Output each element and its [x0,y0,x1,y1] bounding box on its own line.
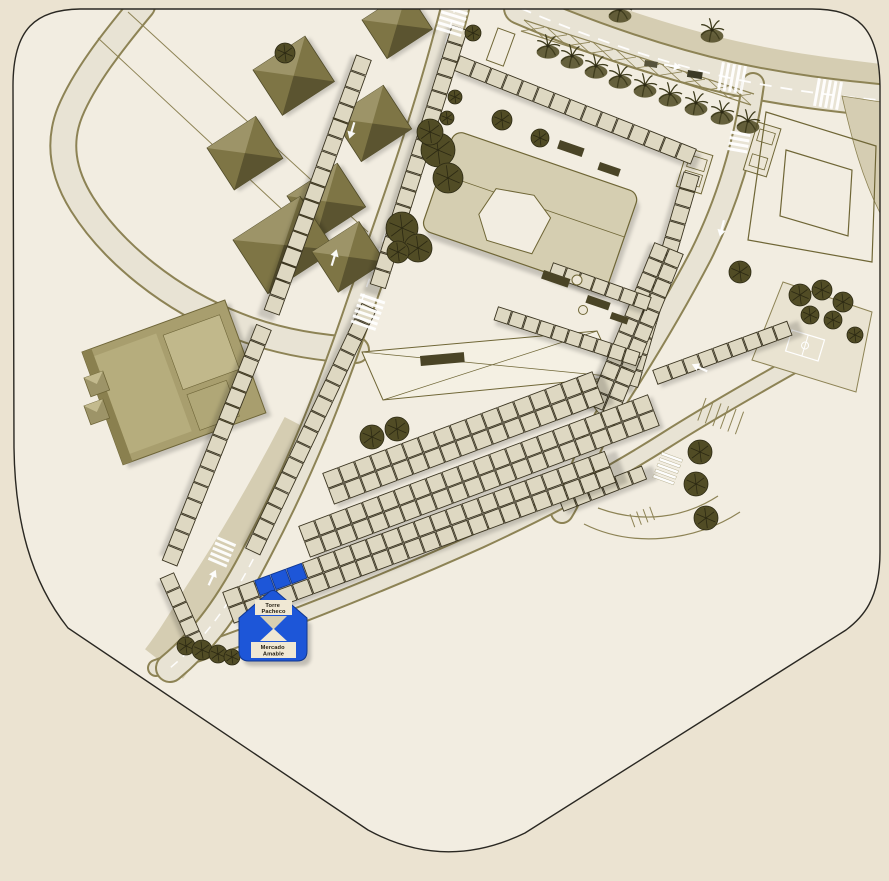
tree [440,111,454,125]
fountain [579,306,588,315]
tree [492,110,512,130]
tree [275,43,295,63]
tree [465,25,481,41]
tree [789,284,811,306]
tree [833,292,853,312]
tree [433,163,463,193]
tree [729,261,751,283]
tree [360,425,384,449]
tree [448,90,462,104]
tree [417,119,443,145]
fountain [572,275,582,285]
tree [531,129,549,147]
tree [812,280,832,300]
tree [801,306,819,324]
marker-subtitle: Mercado Amable [261,645,287,657]
tree [847,327,863,343]
map-canvas[interactable]: Torre Pacheco Mercado Amable [0,0,889,881]
map-artwork [13,0,889,852]
tree [688,440,712,464]
tree [694,506,718,530]
tree [387,241,409,263]
tree [224,649,240,665]
tree [385,417,409,441]
map-illustration: Torre Pacheco Mercado Amable [0,0,889,881]
tree [684,472,708,496]
tree [192,640,212,660]
tree [824,311,842,329]
